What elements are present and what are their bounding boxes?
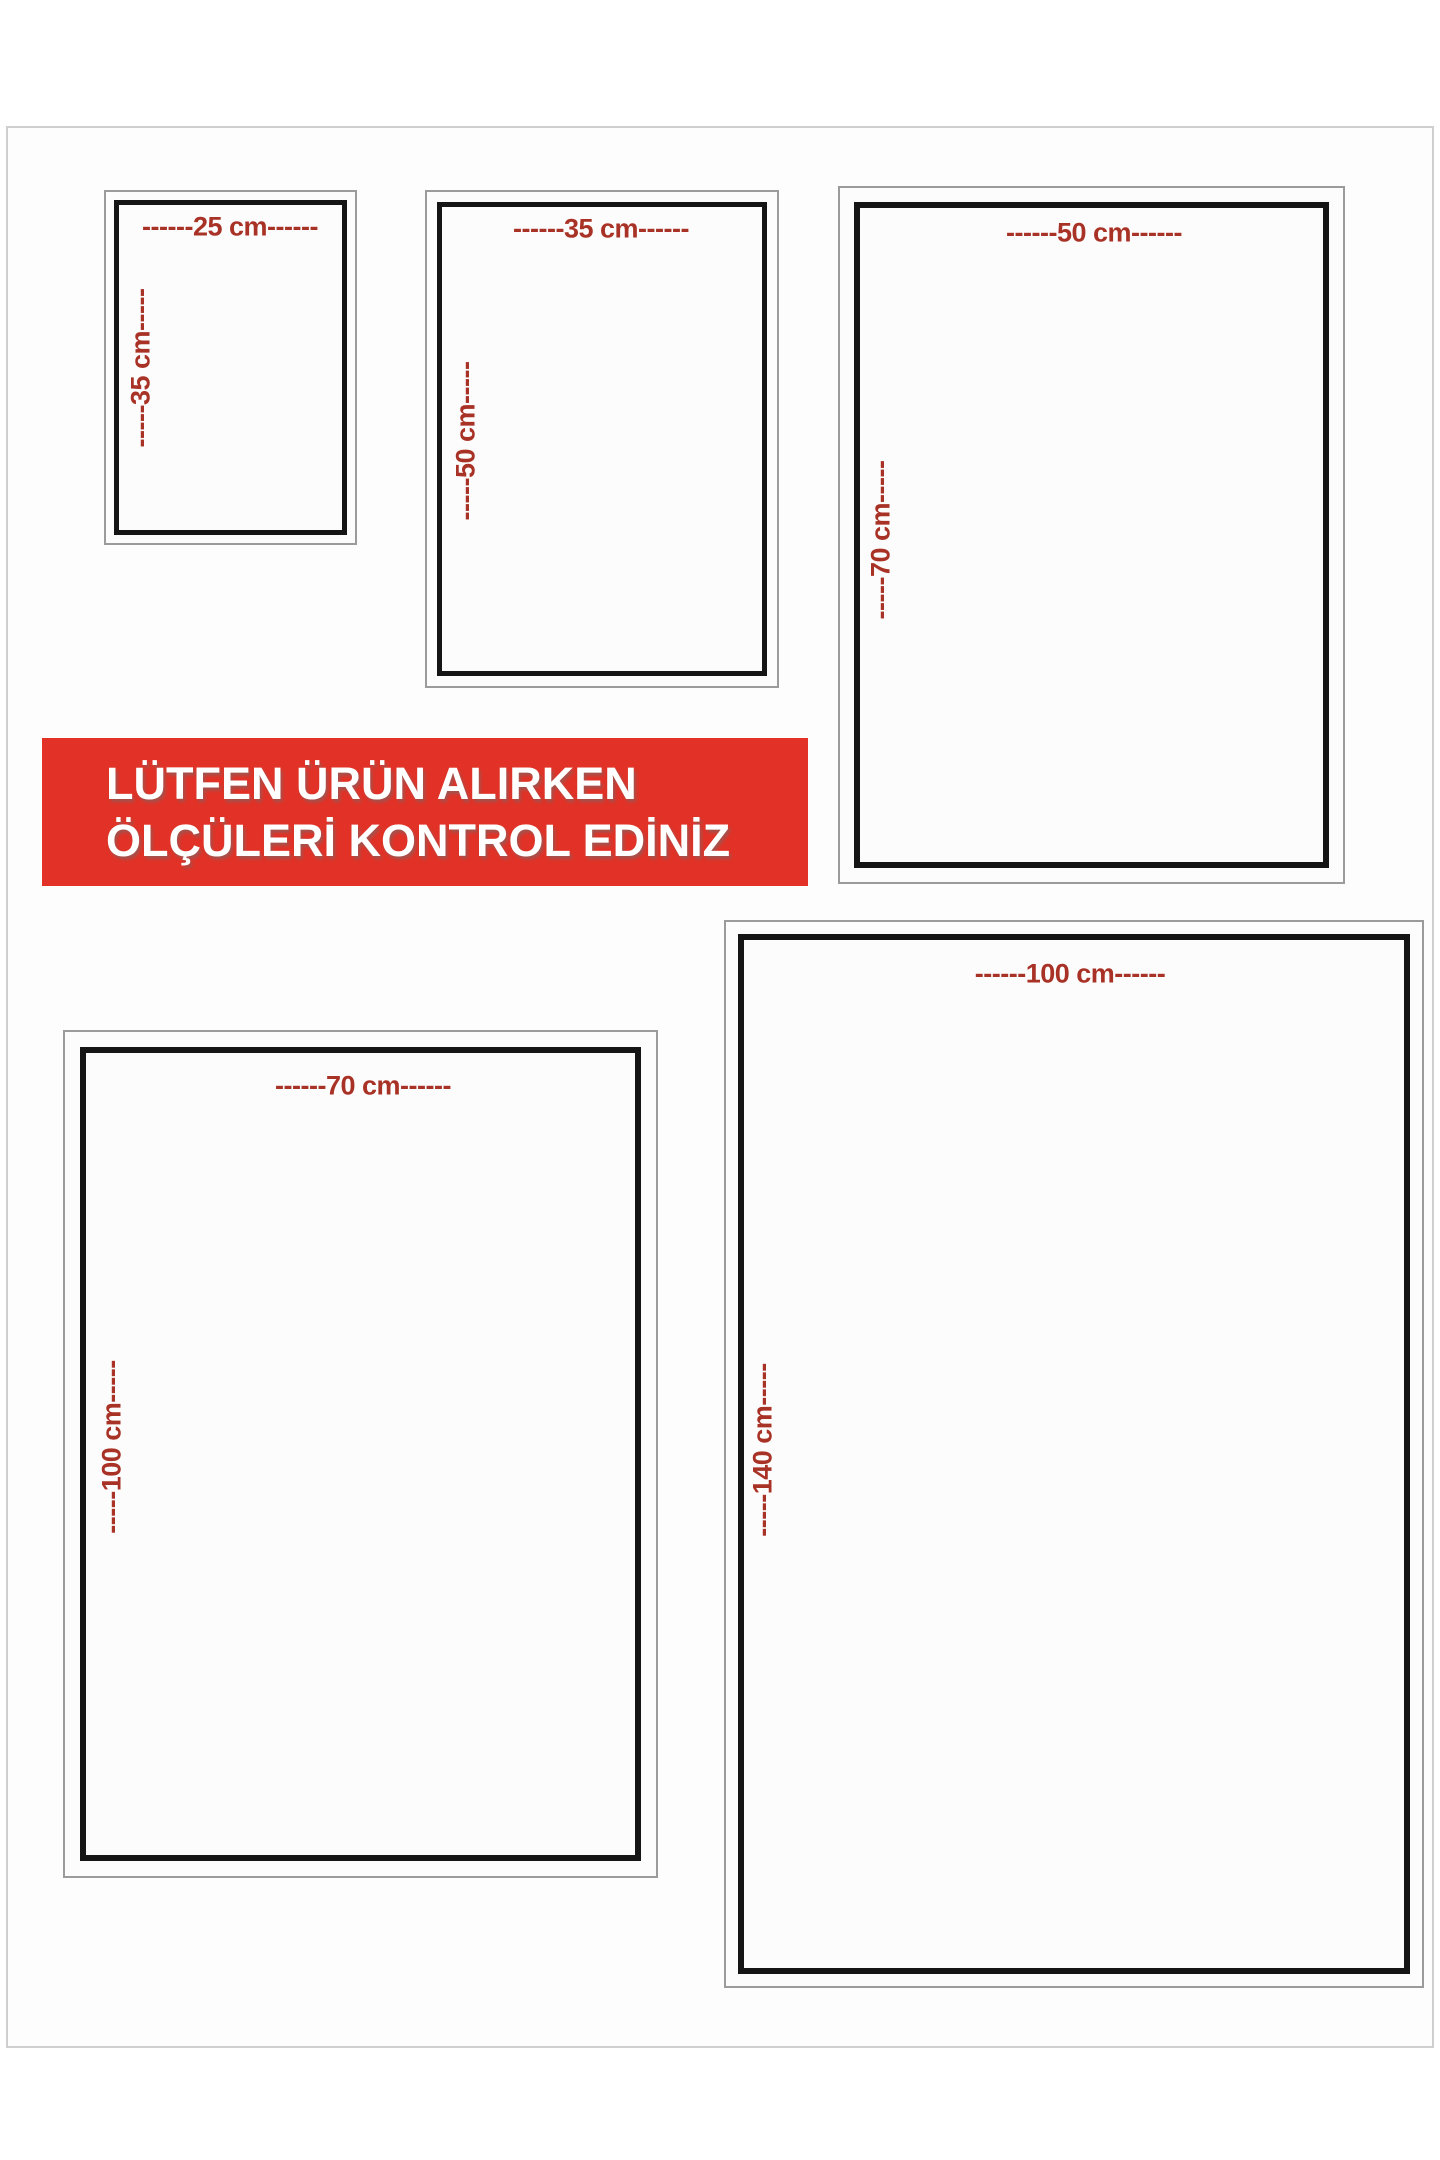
height-label-50cm: -----50 cm----- bbox=[451, 362, 482, 521]
size-box-100x140 bbox=[724, 920, 1424, 1988]
width-label-50cm: ------50 cm------ bbox=[1006, 218, 1182, 249]
height-label-100cm: -----100 cm----- bbox=[97, 1360, 128, 1534]
width-label-100cm: ------100 cm------ bbox=[975, 959, 1165, 990]
size-box-50x70 bbox=[838, 186, 1345, 884]
width-label-70cm: ------70 cm------ bbox=[275, 1071, 451, 1102]
size-box-35x50-inner-frame bbox=[437, 202, 767, 676]
height-label-70cm: -----70 cm----- bbox=[866, 461, 897, 620]
size-box-50x70-inner-frame bbox=[854, 202, 1329, 868]
warning-banner-line2: ÖLÇÜLERİ KONTROL EDİNİZ bbox=[106, 812, 808, 869]
size-box-100x140-inner-frame bbox=[738, 934, 1410, 1974]
height-label-35cm: -----35 cm----- bbox=[126, 289, 157, 448]
width-label-25cm: ------25 cm------ bbox=[142, 212, 318, 243]
warning-banner-line1: LÜTFEN ÜRÜN ALIRKEN bbox=[106, 755, 808, 812]
size-box-70x100 bbox=[63, 1030, 658, 1878]
width-label-35cm: ------35 cm------ bbox=[513, 214, 689, 245]
height-label-140cm: -----140 cm----- bbox=[748, 1363, 779, 1537]
warning-banner: LÜTFEN ÜRÜN ALIRKEN ÖLÇÜLERİ KONTROL EDİ… bbox=[42, 738, 808, 886]
size-box-70x100-inner-frame bbox=[80, 1047, 641, 1861]
